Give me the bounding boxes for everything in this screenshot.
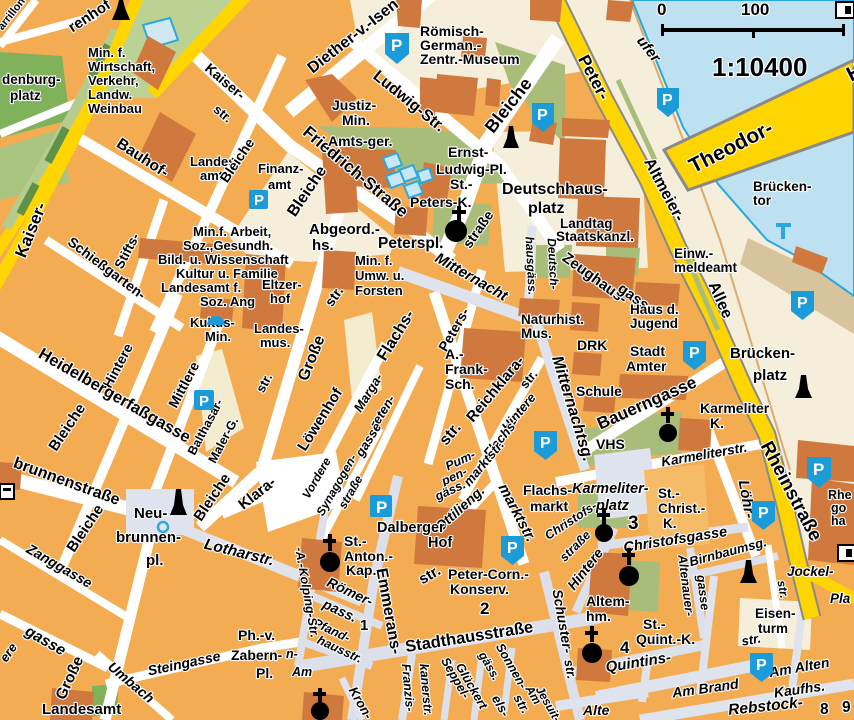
svg-text:8: 8 — [820, 701, 829, 718]
svg-text:amt: amt — [268, 177, 292, 192]
svg-text:P: P — [797, 295, 808, 312]
svg-text:Einw.-: Einw.- — [674, 246, 713, 261]
svg-text:2: 2 — [480, 599, 489, 618]
svg-text:Jockel-: Jockel- — [787, 564, 834, 579]
svg-text:Flachs-: Flachs- — [523, 482, 572, 498]
svg-text:Min.: Min. — [342, 112, 370, 128]
svg-text:K.: K. — [710, 415, 724, 431]
svg-text:Justiz-: Justiz- — [332, 97, 377, 113]
svg-text:Landes-: Landes- — [254, 321, 304, 336]
svg-text:Soz.,Gesundh.: Soz.,Gesundh. — [183, 238, 273, 253]
svg-text:P: P — [813, 460, 824, 479]
svg-text:P: P — [199, 393, 209, 410]
svg-text:Karmeliter-: Karmeliter- — [572, 481, 649, 497]
svg-text:Min. f.: Min. f. — [88, 45, 126, 60]
svg-text:Christ.-: Christ.- — [658, 501, 705, 516]
svg-text:Min.f. Arbeit,: Min.f. Arbeit, — [193, 224, 271, 239]
svg-text:go: go — [831, 501, 847, 515]
svg-text:Landesamt f.: Landesamt f. — [161, 280, 241, 295]
svg-text:P: P — [689, 345, 700, 362]
svg-text:Ludwig-Pl.: Ludwig-Pl. — [436, 161, 507, 177]
svg-text:P: P — [756, 657, 767, 674]
svg-text:9: 9 — [842, 699, 851, 716]
svg-text:P: P — [540, 435, 551, 452]
svg-text:Sch.: Sch. — [445, 376, 475, 392]
svg-text:P: P — [507, 540, 518, 557]
svg-text:Deutschhaus-: Deutschhaus- — [502, 181, 608, 198]
svg-text:Frank-: Frank- — [445, 361, 488, 377]
svg-text:platz: platz — [595, 498, 630, 514]
svg-text:Eisen-: Eisen- — [755, 606, 796, 621]
svg-text:Karmeliter: Karmeliter — [700, 400, 770, 416]
svg-text:hof: hof — [270, 291, 291, 306]
svg-text:Alte: Alte — [582, 702, 610, 718]
svg-text:Bild. u. Wissenschaft: Bild. u. Wissenschaft — [158, 252, 289, 267]
svg-text:markt: markt — [530, 498, 568, 514]
svg-text:Brücken-: Brücken- — [753, 179, 812, 194]
svg-text:Amts-ger.: Amts-ger. — [328, 133, 393, 149]
svg-text:Naturhist.: Naturhist. — [521, 312, 584, 327]
svg-text:Finanz-: Finanz- — [258, 161, 304, 176]
svg-text:100: 100 — [741, 0, 769, 19]
svg-text:Peterspl.: Peterspl. — [378, 235, 443, 252]
svg-text:St.-: St.- — [643, 616, 666, 632]
svg-text:hm.: hm. — [586, 608, 611, 624]
svg-text:Konserv.: Konserv. — [450, 581, 509, 597]
svg-text:P: P — [254, 192, 264, 209]
svg-text:Ernst-: Ernst- — [448, 144, 489, 160]
svg-text:Pl.: Pl. — [256, 665, 273, 681]
svg-text:platz: platz — [753, 367, 787, 384]
svg-text:n-: n- — [286, 647, 298, 661]
svg-text:1:10400: 1:10400 — [712, 52, 807, 82]
svg-text:Verkehr,: Verkehr, — [88, 73, 139, 88]
svg-text:Kap.: Kap. — [346, 562, 376, 578]
svg-text:Deutsch-: Deutsch- — [545, 238, 562, 290]
svg-text:Landw.: Landw. — [88, 87, 132, 102]
svg-text:Neu-: Neu- — [134, 505, 167, 522]
svg-text:Jugend: Jugend — [630, 316, 678, 331]
svg-text:3: 3 — [628, 513, 639, 534]
svg-text:Landesamt: Landesamt — [42, 701, 121, 718]
svg-text:Zentr.-Museum: Zentr.-Museum — [420, 51, 520, 67]
svg-text:Amter: Amter — [626, 358, 667, 374]
svg-text:Am: Am — [291, 665, 312, 679]
svg-text:Wirtschaft,: Wirtschaft, — [88, 59, 155, 74]
svg-text:St.-: St.- — [344, 533, 367, 549]
svg-text:Peters-K.: Peters-K. — [410, 194, 471, 210]
svg-text:St.-: St.- — [658, 486, 680, 501]
svg-text:Eltzer-: Eltzer- — [262, 277, 302, 292]
svg-text:Altem-: Altem- — [586, 593, 630, 609]
svg-text:Umw. u.: Umw. u. — [355, 268, 404, 283]
svg-text:St.-: St.- — [450, 176, 473, 192]
svg-text:platz: platz — [528, 200, 564, 217]
svg-text:Abgeord.-: Abgeord.- — [309, 221, 380, 238]
svg-text:Soz. Ang: Soz. Ang — [200, 294, 255, 309]
svg-text:Min.: Min. — [205, 329, 231, 344]
svg-text:P: P — [662, 92, 673, 109]
svg-text:Quint.-K.: Quint.-K. — [636, 631, 695, 647]
svg-text:1: 1 — [360, 617, 368, 634]
svg-text:Haus d.: Haus d. — [630, 302, 679, 317]
svg-text:DRK: DRK — [577, 337, 607, 353]
svg-text:Rhe: Rhe — [828, 488, 852, 502]
svg-text:pl.: pl. — [146, 552, 164, 569]
svg-text:P: P — [376, 498, 387, 517]
svg-text:ha: ha — [831, 514, 847, 528]
svg-text:Forsten: Forsten — [355, 283, 403, 298]
svg-text:platz: platz — [10, 88, 41, 103]
svg-text:turm: turm — [758, 621, 788, 636]
svg-text:K.: K. — [663, 516, 677, 531]
svg-text:P: P — [537, 107, 548, 124]
svg-text:denburg-: denburg- — [2, 72, 61, 87]
svg-text:hs.: hs. — [312, 237, 334, 254]
svg-text:Stadt: Stadt — [630, 343, 665, 359]
svg-text:Brücken-: Brücken- — [730, 345, 795, 362]
svg-text:Schule: Schule — [576, 383, 622, 399]
svg-text:0: 0 — [657, 0, 666, 19]
svg-text:Dalberger: Dalberger — [377, 520, 445, 536]
svg-text:4: 4 — [620, 638, 630, 657]
svg-text:Mus.: Mus. — [521, 326, 552, 341]
svg-text:Weinbau: Weinbau — [88, 101, 142, 116]
svg-text:Zabern-: Zabern- — [231, 647, 283, 663]
svg-text:Hof: Hof — [428, 535, 452, 551]
svg-text:P: P — [391, 36, 402, 55]
svg-text:tor: tor — [753, 193, 772, 208]
svg-text:Peter-Corn.-: Peter-Corn.- — [448, 566, 529, 582]
svg-text:VHS: VHS — [596, 436, 625, 452]
svg-text:Ph.-v.: Ph.-v. — [238, 627, 275, 643]
svg-text:Min. f.: Min. f. — [355, 253, 393, 268]
svg-text:mus.: mus. — [260, 335, 290, 350]
svg-text:brunnen-: brunnen- — [116, 529, 181, 546]
svg-text:P: P — [758, 505, 769, 522]
svg-text:Pla: Pla — [830, 591, 851, 606]
svg-text:Staatskanzl.: Staatskanzl. — [556, 229, 634, 244]
svg-text:meldeamt: meldeamt — [674, 260, 738, 275]
